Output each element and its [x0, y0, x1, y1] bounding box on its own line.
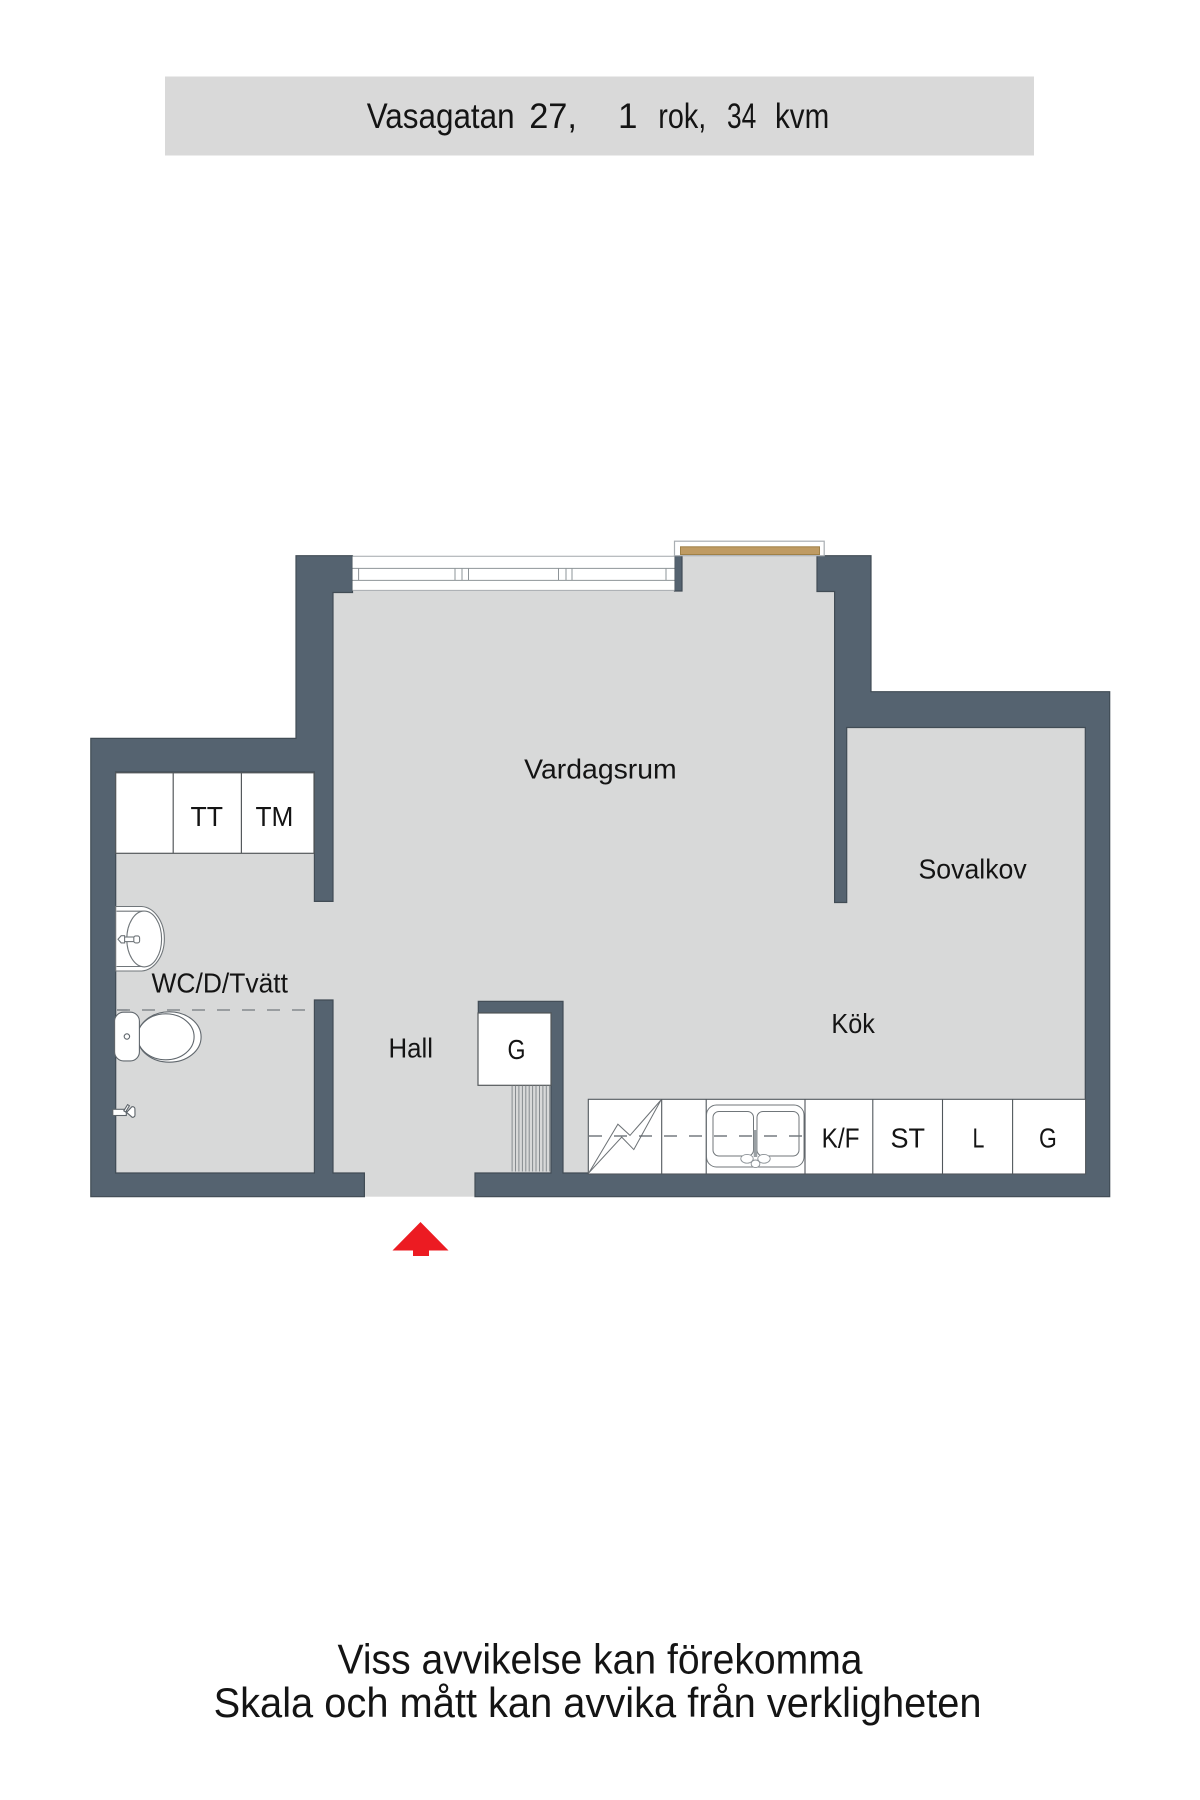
svg-text:Sovalkov: Sovalkov	[919, 854, 1027, 885]
svg-text:K/F: K/F	[822, 1123, 860, 1154]
svg-text:Vasagatan: Vasagatan	[367, 97, 515, 136]
svg-text:TM: TM	[256, 801, 294, 832]
svg-text:WC/D/Tvätt: WC/D/Tvätt	[152, 968, 289, 999]
svg-text:Kök: Kök	[831, 1008, 875, 1039]
svg-text:kvm: kvm	[775, 97, 829, 136]
svg-text:34: 34	[727, 97, 756, 136]
svg-text:Viss avvikelse kan förekomma: Viss avvikelse kan förekomma	[338, 1636, 864, 1683]
svg-text:Skala och mått kan avvika från: Skala och mått kan avvika från verklighe…	[214, 1679, 982, 1726]
svg-text:L: L	[973, 1123, 985, 1154]
svg-text:TT: TT	[191, 801, 224, 832]
svg-text:Vardagsrum: Vardagsrum	[524, 753, 677, 784]
svg-text:rok,: rok,	[658, 97, 706, 136]
svg-text:Hall: Hall	[389, 1032, 434, 1063]
svg-text:G: G	[508, 1034, 526, 1065]
svg-text:27,: 27,	[529, 97, 577, 136]
svg-text:1: 1	[618, 97, 637, 136]
svg-text:ST: ST	[891, 1123, 926, 1154]
svg-text:G: G	[1039, 1123, 1057, 1154]
